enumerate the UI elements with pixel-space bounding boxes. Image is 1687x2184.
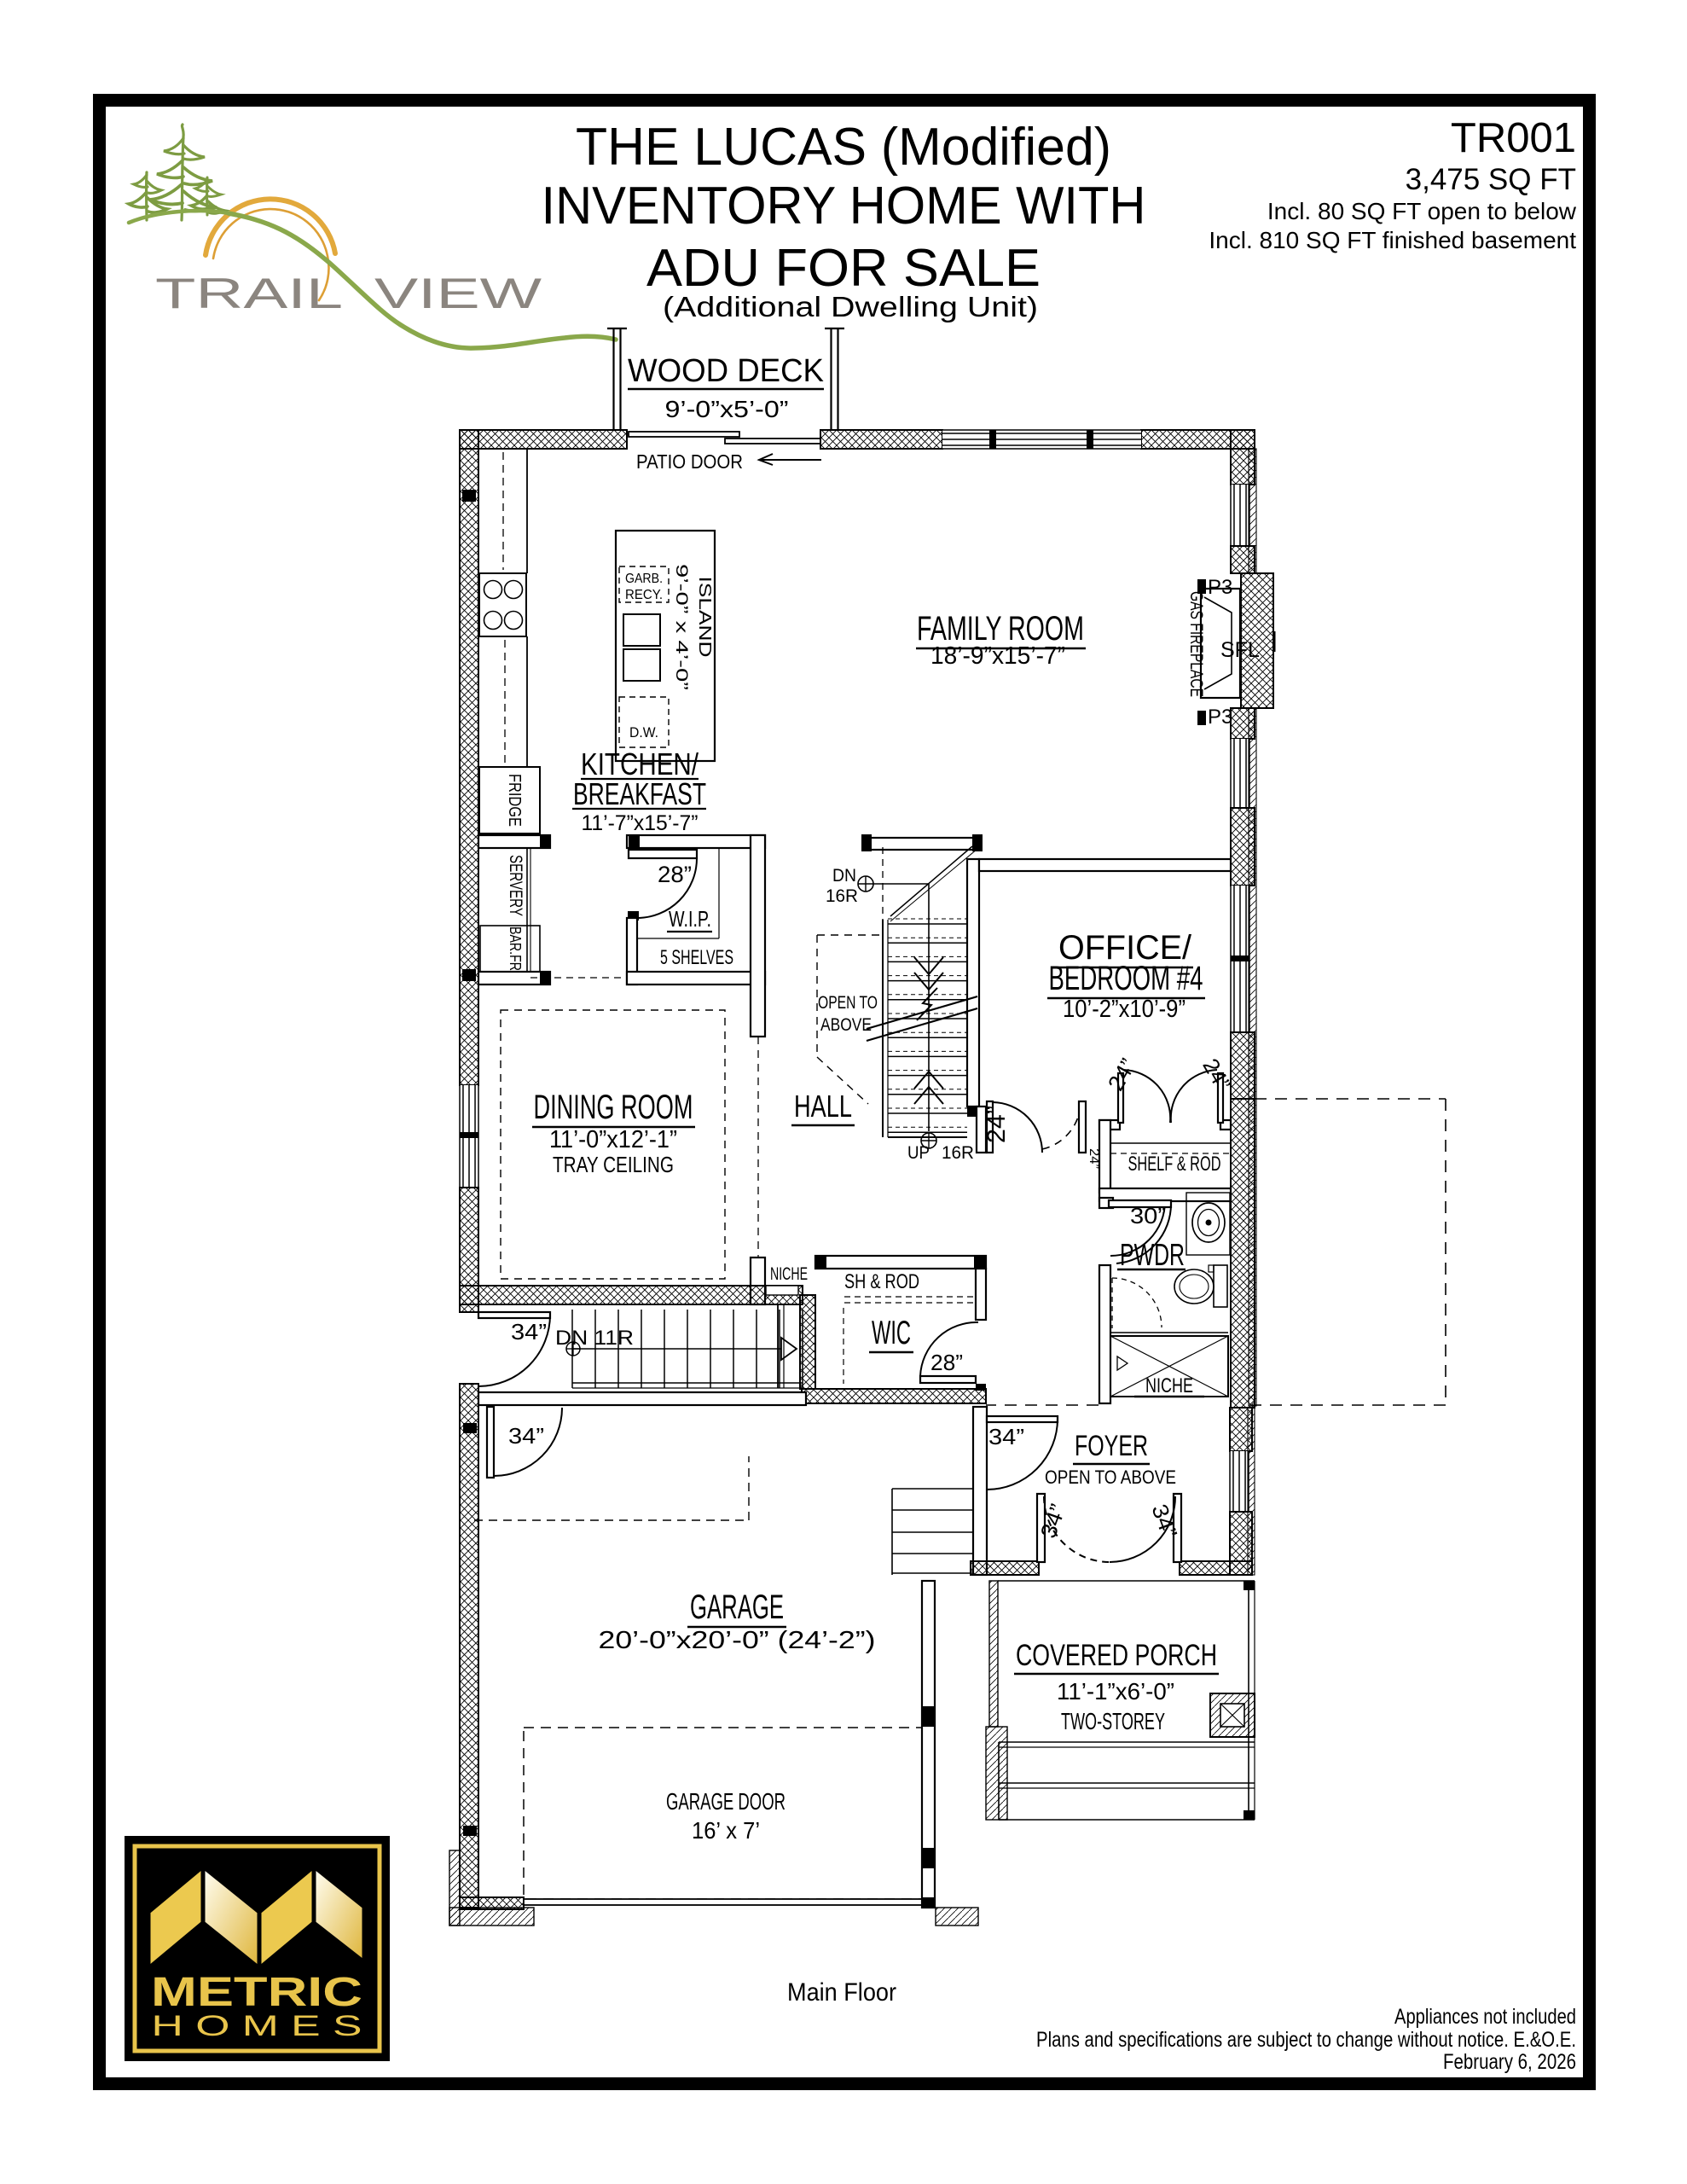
svg-text:DN: DN xyxy=(832,866,856,886)
svg-text:UP: UP xyxy=(907,1143,930,1163)
svg-text:Incl. 80 SQ FT open to below: Incl. 80 SQ FT open to below xyxy=(1267,198,1577,224)
svg-text:PWDR: PWDR xyxy=(1120,1237,1185,1272)
svg-text:20’-0”x20’-0” (24’-2”): 20’-0”x20’-0” (24’-2”) xyxy=(599,1627,876,1654)
svg-text:BREAKFAST: BREAKFAST xyxy=(573,776,706,811)
svg-text:D.W.: D.W. xyxy=(629,724,658,741)
svg-text:RECY.: RECY. xyxy=(625,588,663,602)
svg-text:SHELF & ROD: SHELF & ROD xyxy=(1128,1153,1221,1176)
svg-text:ABOVE: ABOVE xyxy=(820,1015,872,1035)
svg-text:P3: P3 xyxy=(1208,576,1232,599)
svg-text:ADU FOR SALE: ADU FOR SALE xyxy=(646,239,1041,298)
svg-text:16R: 16R xyxy=(826,886,858,906)
svg-text:NICHE: NICHE xyxy=(770,1264,808,1284)
svg-text:HALL: HALL xyxy=(794,1089,852,1124)
svg-text:GARB.: GARB. xyxy=(625,572,663,586)
svg-text:WOOD DECK: WOOD DECK xyxy=(628,353,824,389)
svg-text:PATIO DOOR: PATIO DOOR xyxy=(636,450,743,473)
svg-text:11’-1”x6’-0”: 11’-1”x6’-0” xyxy=(1057,1678,1174,1705)
svg-text:BAR.FR: BAR.FR xyxy=(507,926,524,971)
svg-text:P3: P3 xyxy=(1208,706,1232,729)
svg-text:WIC: WIC xyxy=(872,1315,911,1351)
svg-text:OPEN TO ABOVE: OPEN TO ABOVE xyxy=(1045,1467,1176,1488)
svg-text:February 6, 2026: February 6, 2026 xyxy=(1443,2050,1576,2074)
svg-text:OPEN TO: OPEN TO xyxy=(818,993,878,1013)
svg-text:TRAIL: TRAIL xyxy=(155,270,343,317)
svg-text:28”: 28” xyxy=(658,862,692,887)
svg-text:34”: 34” xyxy=(511,1319,547,1345)
svg-text:10’-2”x10’-9”: 10’-2”x10’-9” xyxy=(1063,996,1186,1023)
svg-text:16R: 16R xyxy=(942,1143,974,1163)
svg-text:THE LUCAS (Modified): THE LUCAS (Modified) xyxy=(576,118,1111,177)
svg-text:24”: 24” xyxy=(983,1106,1011,1143)
svg-text:H O M E S: H O M E S xyxy=(152,2010,362,2042)
svg-text:SFL: SFL xyxy=(1220,638,1260,662)
svg-text:34”: 34” xyxy=(988,1424,1024,1449)
svg-text:3,475 SQ FT: 3,475 SQ FT xyxy=(1406,163,1576,196)
svg-text:NICHE: NICHE xyxy=(1145,1374,1193,1397)
svg-text:16’ x 7’: 16’ x 7’ xyxy=(692,1817,760,1844)
svg-text:ISLAND: ISLAND xyxy=(695,577,714,658)
svg-text:Appliances not included: Appliances not included xyxy=(1394,2005,1576,2029)
svg-text:W.I.P.: W.I.P. xyxy=(669,906,711,932)
svg-text:9’-0” x 4’-0”: 9’-0” x 4’-0” xyxy=(672,564,690,690)
svg-text:9’-0”x5’-0”: 9’-0”x5’-0” xyxy=(665,396,789,422)
svg-text:11’-0”x12’-1”: 11’-0”x12’-1” xyxy=(549,1126,677,1153)
svg-text:COVERED PORCH: COVERED PORCH xyxy=(1016,1639,1217,1672)
svg-text:Incl. 810 SQ FT finished basem: Incl. 810 SQ FT finished basement xyxy=(1209,227,1576,253)
svg-text:18’-9”x15’-7”: 18’-9”x15’-7” xyxy=(930,642,1065,670)
svg-text:34”: 34” xyxy=(508,1423,544,1449)
svg-text:5 SHELVES: 5 SHELVES xyxy=(660,946,733,969)
svg-text:GAS FIREPLACE: GAS FIREPLACE xyxy=(1186,591,1206,697)
svg-text:GARAGE DOOR: GARAGE DOOR xyxy=(666,1788,786,1815)
svg-text:TR001: TR001 xyxy=(1451,115,1576,161)
svg-text:TRAY CEILING: TRAY CEILING xyxy=(553,1152,674,1177)
svg-text:DINING ROOM: DINING ROOM xyxy=(534,1089,693,1126)
svg-text:FRIDGE: FRIDGE xyxy=(505,774,524,827)
svg-text:11’-7”x15’-7”: 11’-7”x15’-7” xyxy=(582,811,699,835)
svg-text:INVENTORY HOME WITH: INVENTORY HOME WITH xyxy=(542,177,1146,235)
svg-text:DN 11R: DN 11R xyxy=(555,1327,634,1350)
svg-text:VIEW: VIEW xyxy=(374,270,542,317)
svg-text:Main Floor: Main Floor xyxy=(787,1978,896,2007)
svg-text:SH & ROD: SH & ROD xyxy=(844,1270,919,1293)
svg-text:TWO-STOREY: TWO-STOREY xyxy=(1061,1708,1165,1734)
svg-text:SERVERY: SERVERY xyxy=(506,855,525,916)
svg-text:BEDROOM #4: BEDROOM #4 xyxy=(1049,960,1203,997)
svg-text:28”: 28” xyxy=(930,1350,963,1375)
svg-text:METRIC: METRIC xyxy=(151,1970,362,2015)
svg-text:Plans and specifications are s: Plans and specifications are subject to … xyxy=(1036,2028,1576,2052)
svg-text:FOYER: FOYER xyxy=(1075,1430,1148,1462)
svg-text:GARAGE: GARAGE xyxy=(690,1589,784,1626)
svg-text:(Additional Dwelling Unit): (Additional Dwelling Unit) xyxy=(663,291,1038,322)
